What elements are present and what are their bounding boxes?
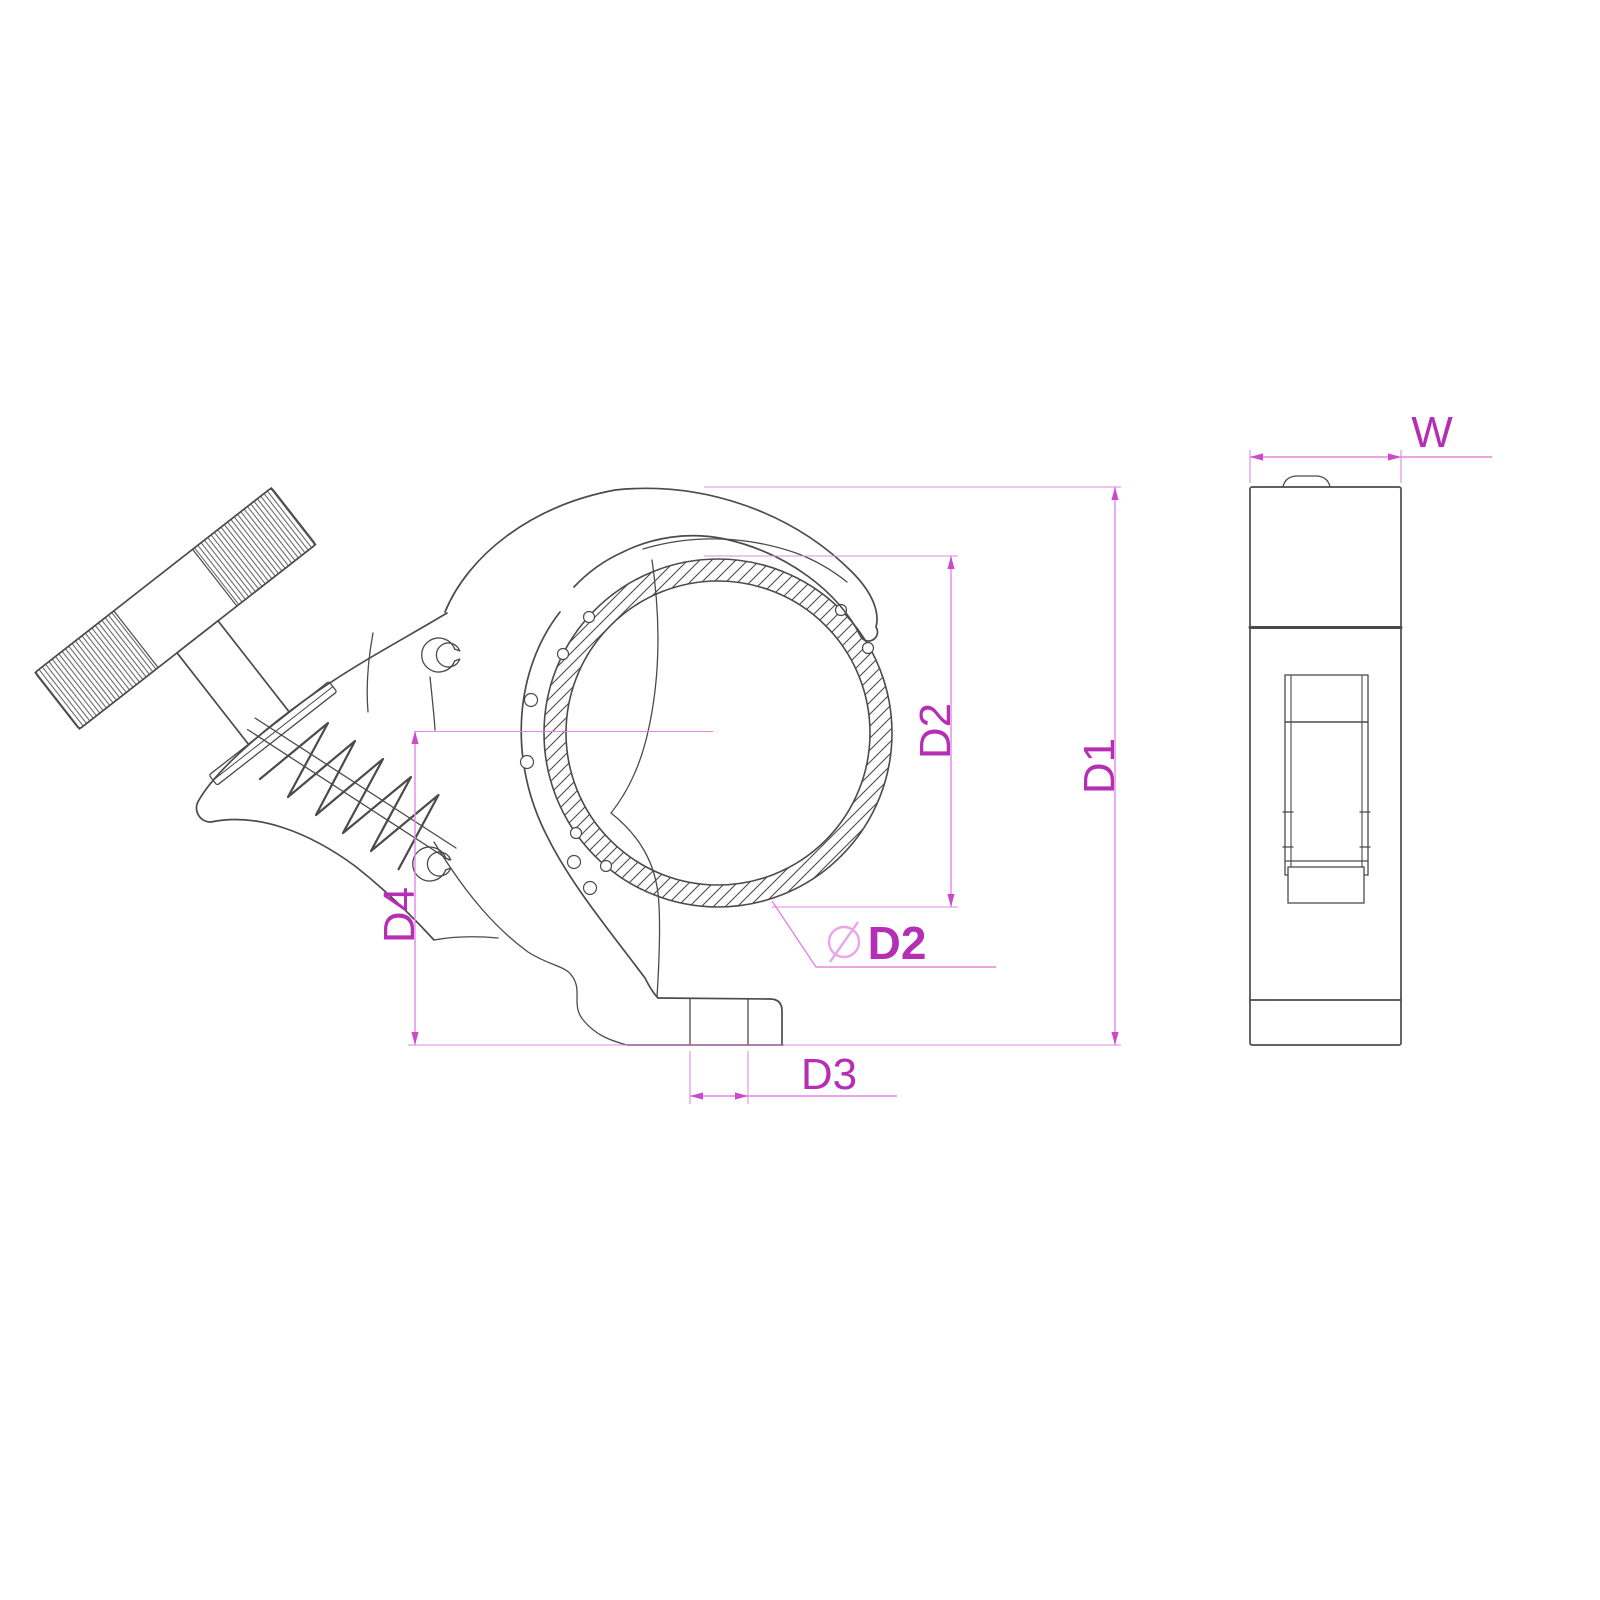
dim-w-extension-lines	[1250, 450, 1401, 483]
dim-d4-arrow-bottom	[411, 1032, 418, 1045]
technical-drawing-canvas: W D1 D2 D4	[0, 0, 1600, 1600]
dim-label-w: W	[1411, 408, 1453, 457]
grip-tooth	[571, 828, 582, 839]
side-screw-tip-bump	[1283, 476, 1330, 487]
roll-pin-slot	[455, 649, 460, 661]
diameter-symbol-icon	[829, 922, 859, 962]
plate-left-lower-edge	[434, 842, 627, 1045]
dim-d2-arrow-top	[947, 556, 954, 569]
side-view	[1250, 476, 1401, 1045]
front-view	[35, 488, 892, 1045]
wing-handle	[35, 488, 395, 831]
roll-pin-inner	[436, 643, 459, 667]
shell-bump	[584, 882, 597, 895]
plate-front-edge	[430, 677, 435, 730]
dim-d3-arrow-left	[690, 1092, 703, 1099]
shell-bump	[521, 756, 534, 769]
dim-label-d3: D3	[801, 1050, 857, 1099]
dim-w-arrow-left	[1250, 453, 1263, 460]
dim-label-d1: D1	[1075, 738, 1124, 794]
slot-foot-block	[1288, 867, 1364, 903]
upper-jaw-outline	[445, 488, 878, 641]
roll-pin-inner	[427, 852, 450, 876]
base-foot	[627, 998, 783, 1045]
dim-w: W	[1250, 408, 1492, 483]
dim-label-d4: D4	[375, 887, 424, 943]
dim-d4-arrow-top	[411, 731, 418, 744]
grip-tooth	[558, 649, 569, 660]
plate-right-edge-lower	[611, 813, 660, 997]
grip-tooth	[863, 643, 874, 654]
dim-d1-arrow-top	[1111, 487, 1118, 500]
dia-d2-callout: D2	[772, 901, 996, 969]
dim-d1-arrow-bottom	[1111, 1032, 1118, 1045]
dim-w-arrow-right	[1388, 453, 1401, 460]
roll-pin-top	[422, 638, 460, 672]
dim-d4: D4	[375, 731, 424, 1045]
dim-label-d2: D2	[911, 703, 960, 759]
dim-d3-arrow-right	[735, 1092, 748, 1099]
dia-d2-label: D2	[868, 917, 927, 969]
grip-tooth	[584, 612, 595, 623]
grip-teeth	[558, 605, 874, 872]
side-latch-slot	[1283, 675, 1370, 903]
latch-inner-merge	[434, 937, 498, 940]
grip-tooth	[601, 861, 612, 872]
roll-pin-bottom	[413, 847, 451, 881]
dim-d3: D3	[690, 1050, 897, 1104]
rod-rail-lower	[248, 730, 450, 861]
threaded-rod	[248, 718, 457, 860]
screw-boss-edge	[367, 633, 373, 712]
shell-bump	[568, 856, 581, 869]
foot-step-outline	[658, 998, 782, 1045]
shell-bump	[525, 694, 538, 707]
clamp-shell-outline	[521, 612, 658, 998]
slot-outline	[1285, 675, 1368, 875]
dim-d2-arrow-bottom	[947, 894, 954, 907]
